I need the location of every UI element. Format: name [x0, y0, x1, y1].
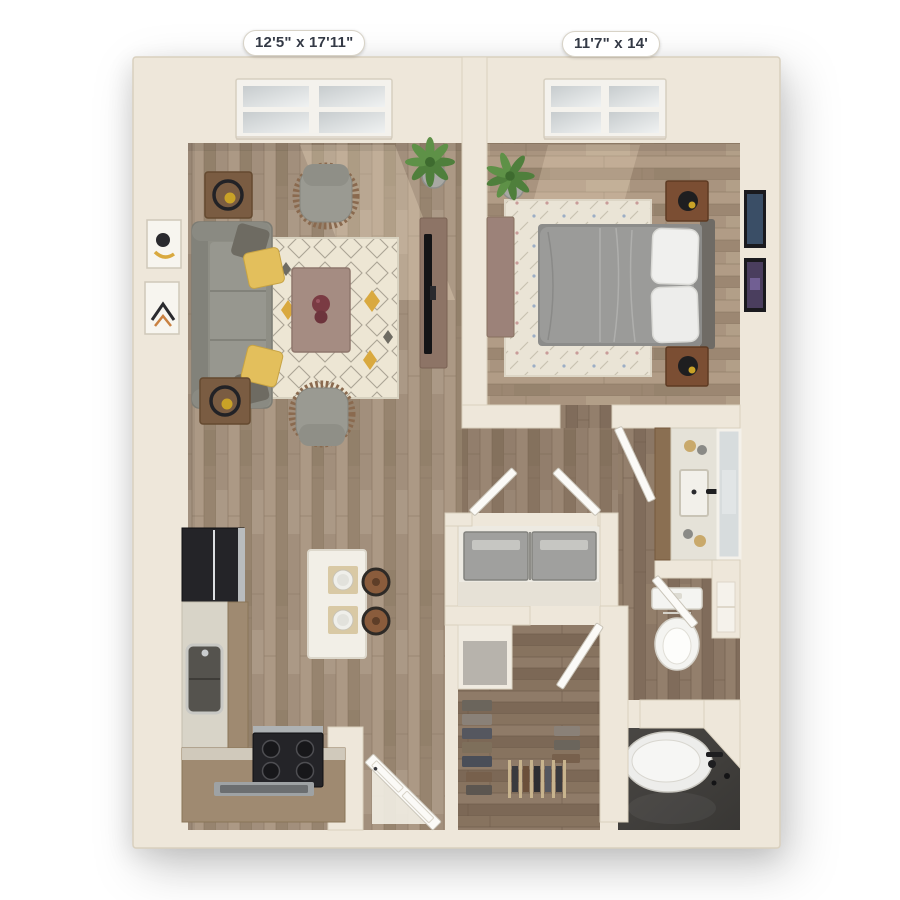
vanity-faucet — [706, 489, 718, 494]
headboard — [700, 219, 715, 349]
tub-reflection — [628, 792, 716, 824]
bed — [538, 219, 715, 349]
wall-vanity-south — [655, 560, 712, 578]
tv-console — [420, 218, 447, 368]
floor-plan-render — [0, 0, 900, 900]
closet-shelves-left — [462, 700, 492, 795]
floor-plan-stage: 12'5" x 17'11" 11'7" x 14' — [0, 0, 900, 900]
side-table-bottom — [200, 378, 250, 424]
window-living-room — [236, 79, 392, 140]
wall-laundry-top-left — [445, 513, 472, 526]
plant-leaves — [405, 137, 455, 187]
window-bedroom — [544, 79, 666, 140]
wall-bedroom-south-left — [462, 405, 560, 428]
wall-laundry-right — [600, 513, 618, 606]
bedside-lamp — [678, 191, 698, 211]
pillow — [651, 286, 699, 343]
laundry-ledge — [458, 582, 600, 606]
wall-bedroom-south-right — [612, 405, 740, 428]
bedside-lamp — [678, 356, 698, 376]
wall-closet-top — [445, 606, 530, 625]
stove — [253, 726, 323, 787]
wall-closet-right — [600, 606, 628, 822]
closet-shelves-right — [552, 726, 580, 763]
centerpiece — [312, 295, 330, 313]
dresser — [487, 217, 514, 337]
side-table-top — [205, 172, 252, 218]
closet-niche-shadow — [463, 641, 507, 685]
kitchen-sink — [187, 645, 222, 713]
dimension-label-bedroom: 11'7" x 14' — [562, 31, 660, 57]
accent-chair-top — [297, 164, 355, 225]
accent-chair-bottom — [293, 385, 351, 446]
vanity-cabinet — [655, 428, 671, 560]
wall-living-bedroom — [462, 57, 487, 405]
floor-bedroom-doorway — [560, 405, 612, 428]
dimension-label-living-room: 12'5" x 17'11" — [243, 30, 365, 56]
vanity — [655, 428, 740, 560]
coffee-table — [292, 268, 350, 352]
pillow — [651, 228, 699, 285]
tub-faucet — [706, 752, 723, 757]
wall-tub-divider — [640, 700, 704, 728]
washer-dryer — [464, 532, 596, 580]
cabinet-face — [228, 602, 248, 748]
